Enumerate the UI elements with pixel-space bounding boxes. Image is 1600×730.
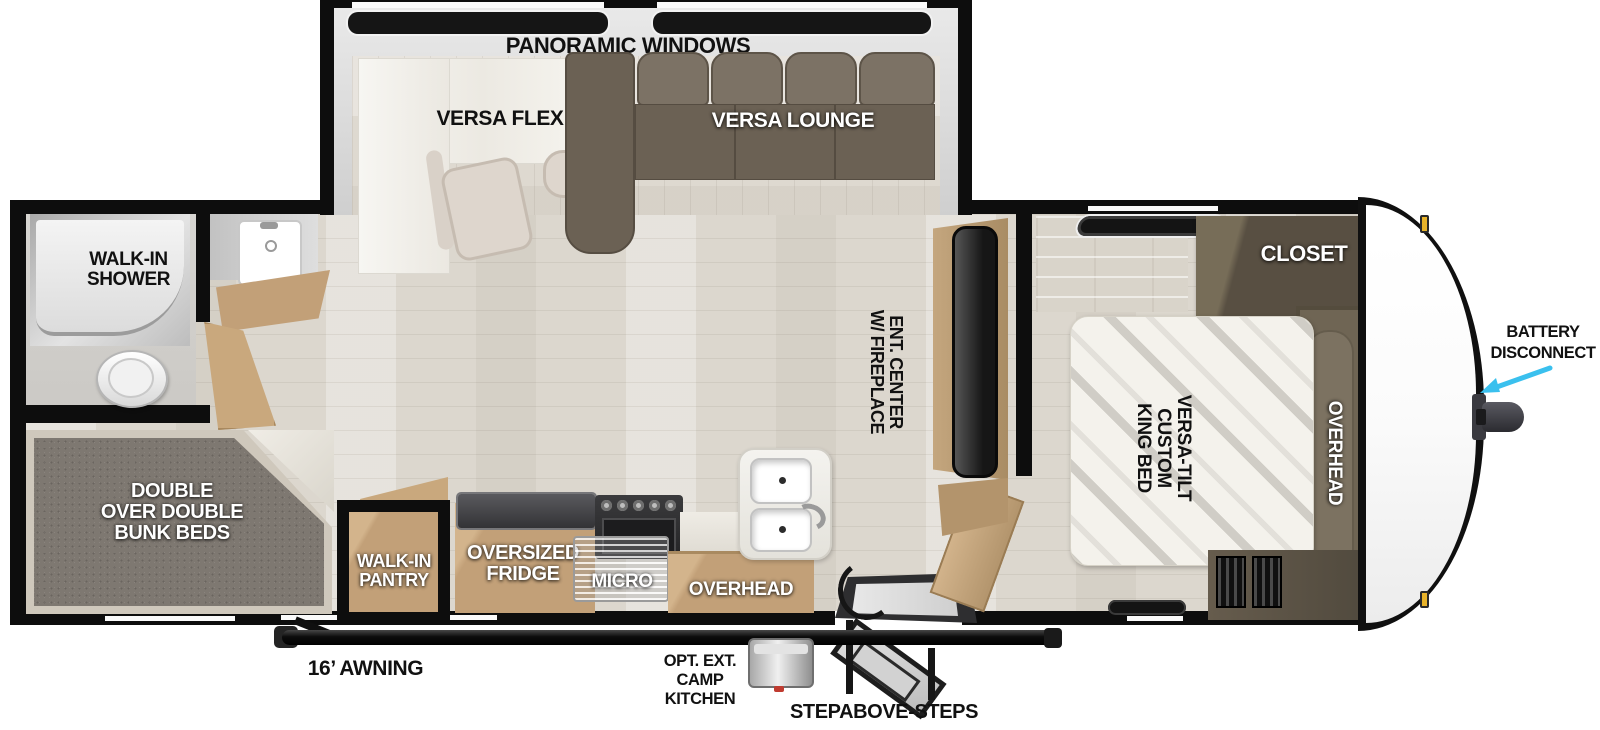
hitch-notch <box>1476 409 1486 425</box>
sofa-back-cushion-1 <box>637 52 709 106</box>
sofa-back-cushion-3 <box>785 52 857 106</box>
floorplan-canvas: PANORAMIC WINDOWS VERSA FLEX VERSA LOUNG… <box>0 0 1600 730</box>
bunk-beds-label: DOUBLEOVER DOUBLEBUNK BEDS <box>77 481 267 545</box>
camp-kitchen-label: OPT. EXT.CAMPKITCHEN <box>650 652 750 709</box>
dresser-slat-door-1 <box>1216 556 1246 608</box>
closet-label: CLOSET <box>1240 242 1368 265</box>
kitchen-overhead-label: OVERHEAD <box>670 580 812 600</box>
clearance-light-bottom <box>1420 591 1429 608</box>
range-burner-4 <box>649 500 660 511</box>
clearance-light-top <box>1420 215 1429 233</box>
versa-lounge-label: VERSA LOUNGE <box>693 110 893 132</box>
ent-center-tv <box>952 226 998 478</box>
bathroom-wall-bottom <box>10 405 210 423</box>
bedroom-floor-vent <box>1108 600 1186 615</box>
bedroom-top-window <box>1088 206 1218 211</box>
sofa-chaise <box>565 52 635 254</box>
awning-end-cap-right <box>1044 628 1062 648</box>
dresser-slat-door-2 <box>1252 556 1282 608</box>
walkin-shower-label: WALK-INSHOWER <box>56 250 201 290</box>
ent-center-label: ENT. CENTERW/ FIREPLACE <box>861 292 905 452</box>
range-burner-1 <box>601 500 612 511</box>
front-cap <box>1366 205 1476 623</box>
awning-tube <box>282 630 1052 645</box>
stepabove-steps-label: STEPABOVE-STEPS <box>784 702 984 723</box>
bunk-window <box>105 616 235 621</box>
fridge-top <box>458 494 595 528</box>
king-bed-label: VERSA-TILTCUSTOMKING BED <box>1131 373 1193 523</box>
pantry-label: WALK-INPANTRY <box>342 552 446 590</box>
range-burner-3 <box>633 500 644 511</box>
battery-disconnect-arrow <box>1468 362 1556 400</box>
sofa-back-cushion-2 <box>711 52 783 106</box>
top-wall-left <box>10 200 332 214</box>
vanity-drain <box>265 240 277 252</box>
hitch-coupler <box>1482 402 1524 432</box>
range-burner-5 <box>665 500 676 511</box>
battery-disconnect-label: BATTERYDISCONNECT <box>1486 322 1600 363</box>
vanity-faucet <box>260 222 278 229</box>
bedroom-wall <box>1016 214 1032 476</box>
panoramic-window-left <box>348 12 608 34</box>
bedroom-overhead-label: OVERHEAD <box>1322 392 1344 514</box>
panoramic-window-strip-right <box>657 2 927 8</box>
bedroom-bottom-window <box>1127 616 1183 621</box>
toilet-seat <box>108 358 154 398</box>
micro-label: MICRO <box>575 572 669 592</box>
sofa-back-cushion-4 <box>859 52 935 106</box>
sink-drain-top <box>779 477 786 484</box>
camp-kitchen-lid <box>754 644 808 654</box>
bathroom-wall-right <box>196 214 210 322</box>
range-burner-2 <box>617 500 628 511</box>
closet <box>1196 216 1362 318</box>
camp-kitchen-knob <box>774 686 784 692</box>
panoramic-window-right <box>653 12 931 34</box>
step-rail-right <box>928 648 935 700</box>
panoramic-window-strip-left <box>352 2 604 8</box>
awning-label: 16’ AWNING <box>298 658 433 680</box>
versa-flex-label: VERSA FLEX <box>420 108 580 130</box>
sink-drain-bottom <box>779 526 786 533</box>
